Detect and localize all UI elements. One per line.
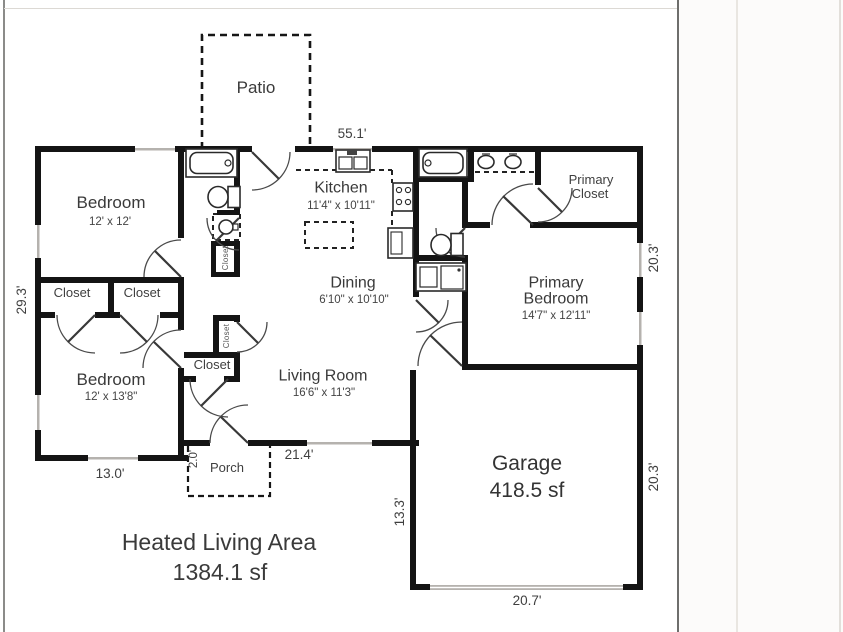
patio-label: Patio	[237, 79, 276, 97]
heated-area-title: Heated Living Area	[122, 530, 316, 554]
dim-bottom-left: 13.0'	[96, 467, 125, 481]
washer-dryer	[416, 263, 466, 291]
primary-bedroom-dims: 14'7" x 12'11"	[522, 310, 591, 322]
closet-left2-label: Closet	[124, 286, 161, 300]
floor-plan-page: Patio 55.1' Bedroom 12' x 12' Kitchen 11…	[0, 0, 843, 632]
living-room-dims: 16'6" x 11'3"	[293, 387, 355, 399]
bedroom1-label: Bedroom	[77, 194, 146, 212]
dim-top: 55.1'	[338, 127, 367, 141]
dim-living-bottom: 21.4'	[285, 448, 314, 462]
garage-label: Garage	[492, 453, 562, 475]
bathtub-hall	[186, 149, 237, 177]
closet-mid-label: Closet	[194, 358, 231, 372]
garage-door	[430, 585, 623, 587]
closet-hall-label: Closet	[223, 324, 231, 348]
living-room-label: Living Room	[279, 369, 368, 386]
dim-garage-left: 13.3'	[393, 498, 407, 527]
kitchen-island	[305, 222, 353, 248]
bedroom2-label: Bedroom	[77, 371, 146, 389]
kitchen-dims: 11'4" x 10'11"	[307, 200, 375, 212]
bedroom2-dims: 12' x 13'8"	[85, 391, 138, 403]
dim-left: 29.3'	[15, 286, 29, 315]
heated-area-value: 1384.1 sf	[173, 560, 268, 584]
closet-bath-label: Closet	[222, 246, 230, 270]
kitchen-label: Kitchen	[314, 181, 367, 198]
stove	[393, 183, 413, 211]
dim-porch-depth: 2.0'	[188, 450, 200, 468]
primary-bedroom-label-2: Bedroom	[524, 292, 589, 309]
refrigerator	[388, 228, 413, 258]
porch-label: Porch	[210, 461, 244, 475]
toilet-hall	[208, 187, 240, 208]
vanity-sinks-primary	[478, 154, 521, 169]
dim-right-upper: 20.3'	[647, 244, 661, 273]
primary-closet-label-1: Primary	[569, 173, 614, 187]
dim-garage-bottom: 20.7'	[513, 594, 542, 608]
closet-left1-label: Closet	[54, 286, 91, 300]
kitchen-sink	[336, 149, 370, 172]
dining-label: Dining	[330, 276, 375, 293]
dim-right-garage: 20.3'	[647, 463, 661, 492]
bedroom1-dims: 12' x 12'	[89, 216, 131, 228]
garage-area: 418.5 sf	[490, 480, 565, 502]
toilet-primary	[431, 234, 463, 256]
primary-closet-label-2: Closet	[572, 187, 609, 201]
bathtub-primary	[419, 149, 467, 177]
dining-dims: 6'10" x 10'10"	[319, 294, 388, 306]
